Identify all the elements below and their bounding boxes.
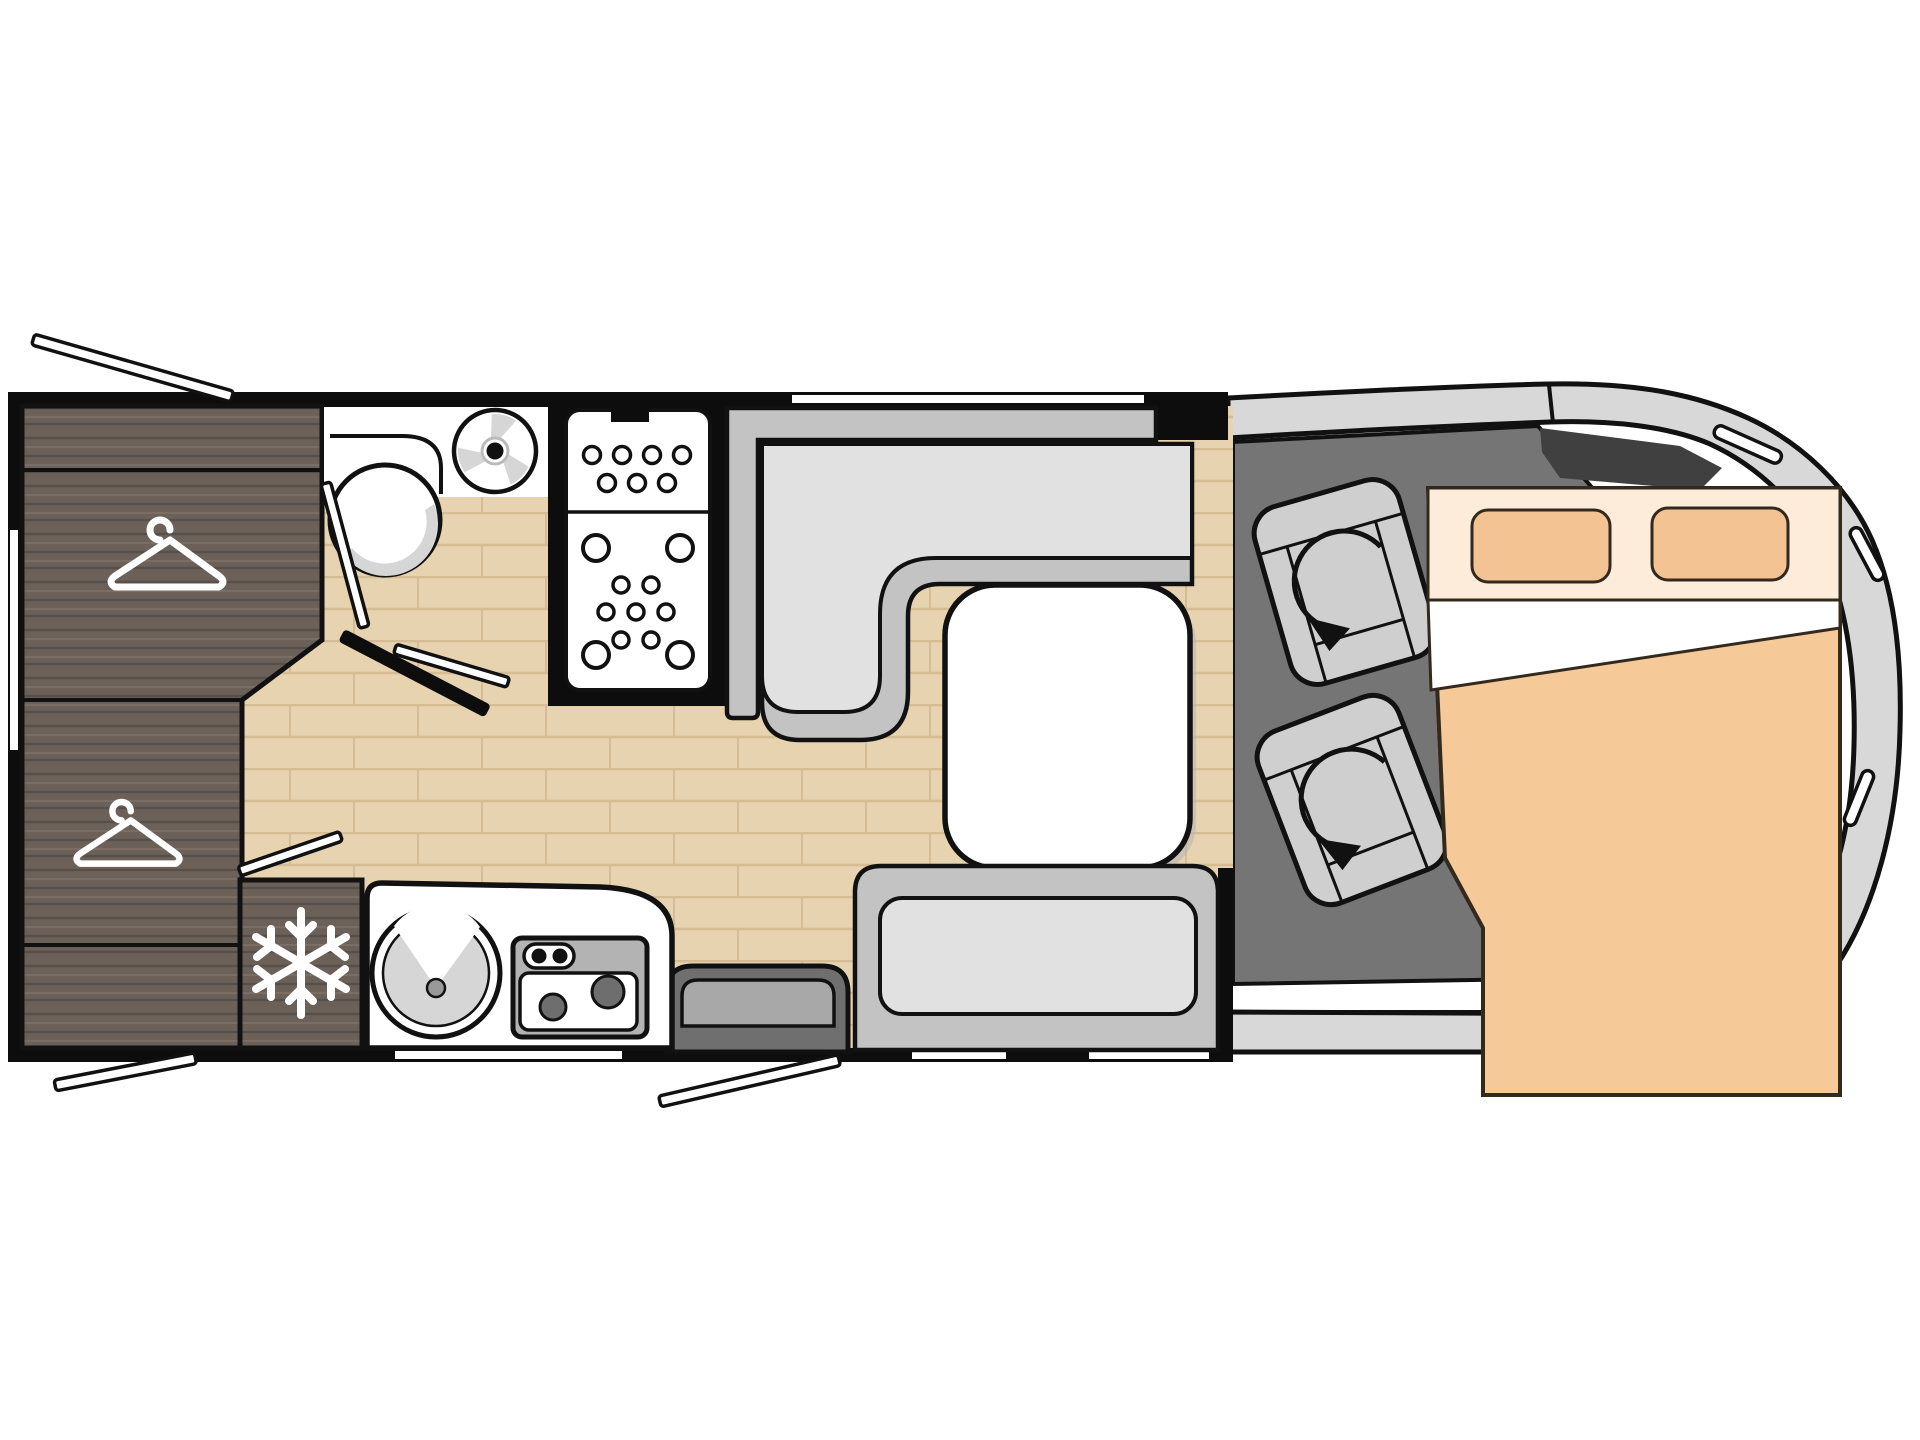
cab-corner-wall bbox=[1156, 392, 1228, 440]
drop-down-bed bbox=[1428, 488, 1840, 1095]
pillow bbox=[1652, 508, 1788, 580]
kitchen-sink bbox=[372, 904, 500, 1037]
shower bbox=[548, 392, 728, 706]
window-left bbox=[10, 530, 18, 750]
floor-plan-canvas bbox=[0, 0, 1920, 1440]
travel-bench bbox=[855, 866, 1218, 1050]
pillow bbox=[1472, 510, 1610, 582]
kitchen bbox=[367, 883, 672, 1048]
entry-door-flap bbox=[659, 1055, 841, 1107]
floor-plan bbox=[0, 0, 1920, 1440]
roof-hatch-flap-top-left bbox=[32, 334, 234, 402]
shower-head-notch bbox=[611, 398, 649, 422]
roof-vent-fan bbox=[454, 410, 536, 492]
entry-step bbox=[667, 966, 848, 1052]
hob bbox=[513, 938, 647, 1037]
dinette-table bbox=[945, 585, 1190, 868]
window-bottom-kitchen bbox=[395, 1051, 622, 1059]
window-top bbox=[792, 395, 1144, 403]
freezer bbox=[240, 880, 362, 1048]
